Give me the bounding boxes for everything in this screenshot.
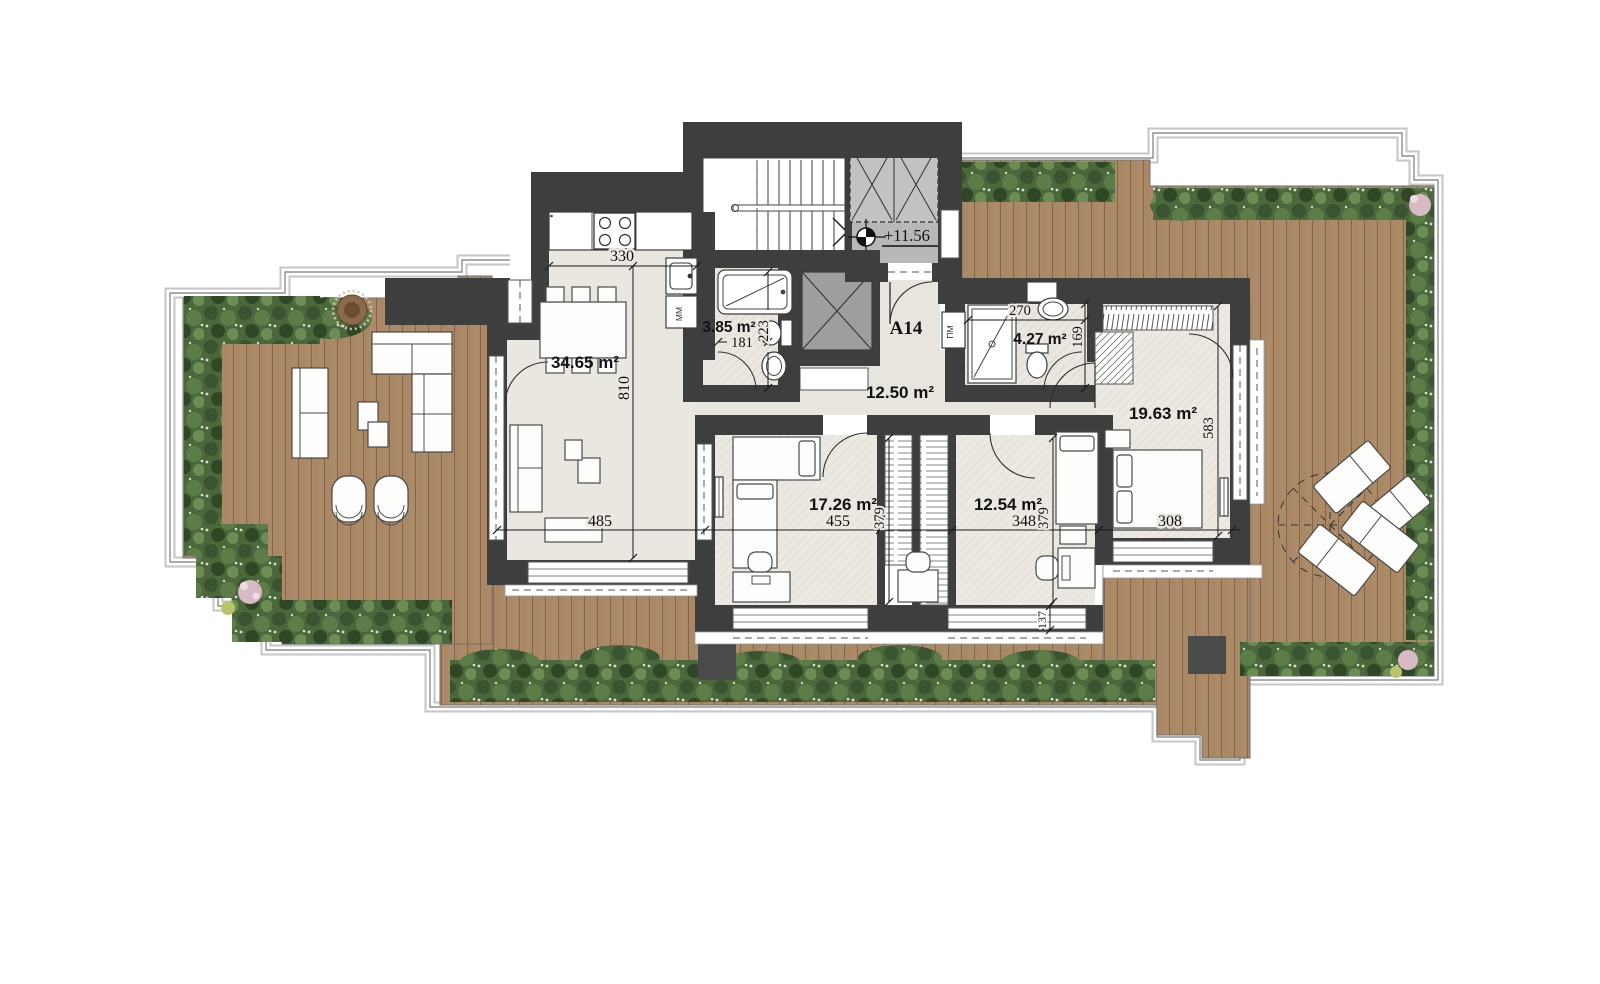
desk-chair xyxy=(748,552,772,572)
window-upper-left xyxy=(508,280,532,323)
flower-cluster xyxy=(1398,650,1418,670)
elevation-label: +11.56 xyxy=(884,226,930,245)
pillow xyxy=(737,484,773,499)
toilet xyxy=(1026,344,1048,378)
stove xyxy=(594,213,635,249)
nightstand xyxy=(1105,430,1130,448)
outdoor-chair xyxy=(332,476,366,522)
dim-455: 455 xyxy=(826,513,850,530)
floor-plan-page: 34.65 m² 3.85 m² 12.50 m² 4.27 m² 17.26 … xyxy=(0,0,1600,984)
dim-223: 223 xyxy=(756,320,772,342)
sill xyxy=(695,632,1103,644)
dim-810: 810 xyxy=(616,376,633,400)
side-table xyxy=(368,422,388,447)
dim-583: 583 xyxy=(1201,417,1217,439)
pillow xyxy=(1117,455,1132,487)
dim-379-bed1: 379 xyxy=(872,507,888,529)
kitchen-module-label: MM xyxy=(674,307,684,321)
room-area-bath2: 4.27 m² xyxy=(1013,331,1066,348)
dim-348: 348 xyxy=(1012,513,1036,530)
dim-330: 330 xyxy=(610,248,634,265)
sink xyxy=(1038,298,1068,320)
deck-shaft-block xyxy=(698,640,736,680)
terrace-wall-block xyxy=(385,278,510,325)
outdoor-chair xyxy=(374,476,408,522)
desk-chair xyxy=(906,552,930,572)
stair-rail xyxy=(733,205,845,211)
dim-181: 181 xyxy=(731,335,753,351)
dim-137: 137 xyxy=(1035,611,1049,629)
pillow xyxy=(799,441,815,476)
window-bedroom1-left xyxy=(697,444,712,540)
unit-label: A14 xyxy=(890,318,923,339)
nightstand xyxy=(1060,526,1086,544)
window-bedroom3-bottom xyxy=(1113,541,1213,562)
coffee-table xyxy=(578,458,600,483)
kitchen-sink xyxy=(666,258,697,294)
pillow xyxy=(1117,491,1132,523)
window-living-left xyxy=(489,356,504,540)
sofa xyxy=(510,425,542,512)
pillow xyxy=(1060,436,1094,451)
washing-machine-label: ПМ xyxy=(945,325,955,338)
coffee-table xyxy=(565,440,582,460)
dim-308: 308 xyxy=(1158,513,1182,530)
window-living-bottom xyxy=(528,562,688,583)
desk xyxy=(898,570,938,602)
sink xyxy=(762,352,786,380)
dim-270: 270 xyxy=(1009,303,1031,319)
room-area-bedroom2: 12.54 m² xyxy=(974,495,1042,514)
window-bedroom2-bottom xyxy=(948,608,1086,629)
window-bedroom3-right xyxy=(1233,345,1247,500)
deck-shaft-block xyxy=(1188,636,1226,674)
desk xyxy=(1058,548,1095,588)
desk-chair xyxy=(1036,556,1058,580)
window-landing-right xyxy=(941,210,959,258)
elevator-niche xyxy=(800,368,868,390)
room-area-bath1: 3.85 m² xyxy=(702,319,755,336)
room-area-living: 34.65 m² xyxy=(551,353,619,372)
room-area-hall: 12.50 m² xyxy=(866,383,934,402)
dim-485: 485 xyxy=(588,513,612,530)
floor-plan-drawing: 34.65 m² 3.85 m² 12.50 m² 4.27 m² 17.26 … xyxy=(0,0,1600,984)
room-area-bedroom1: 17.26 m² xyxy=(809,495,877,514)
dim-169: 169 xyxy=(1070,326,1086,348)
room-area-bedroom3: 19.63 m² xyxy=(1129,404,1197,423)
dim-379-bed2: 379 xyxy=(1036,507,1052,529)
window-bedroom1-bottom xyxy=(733,608,868,629)
